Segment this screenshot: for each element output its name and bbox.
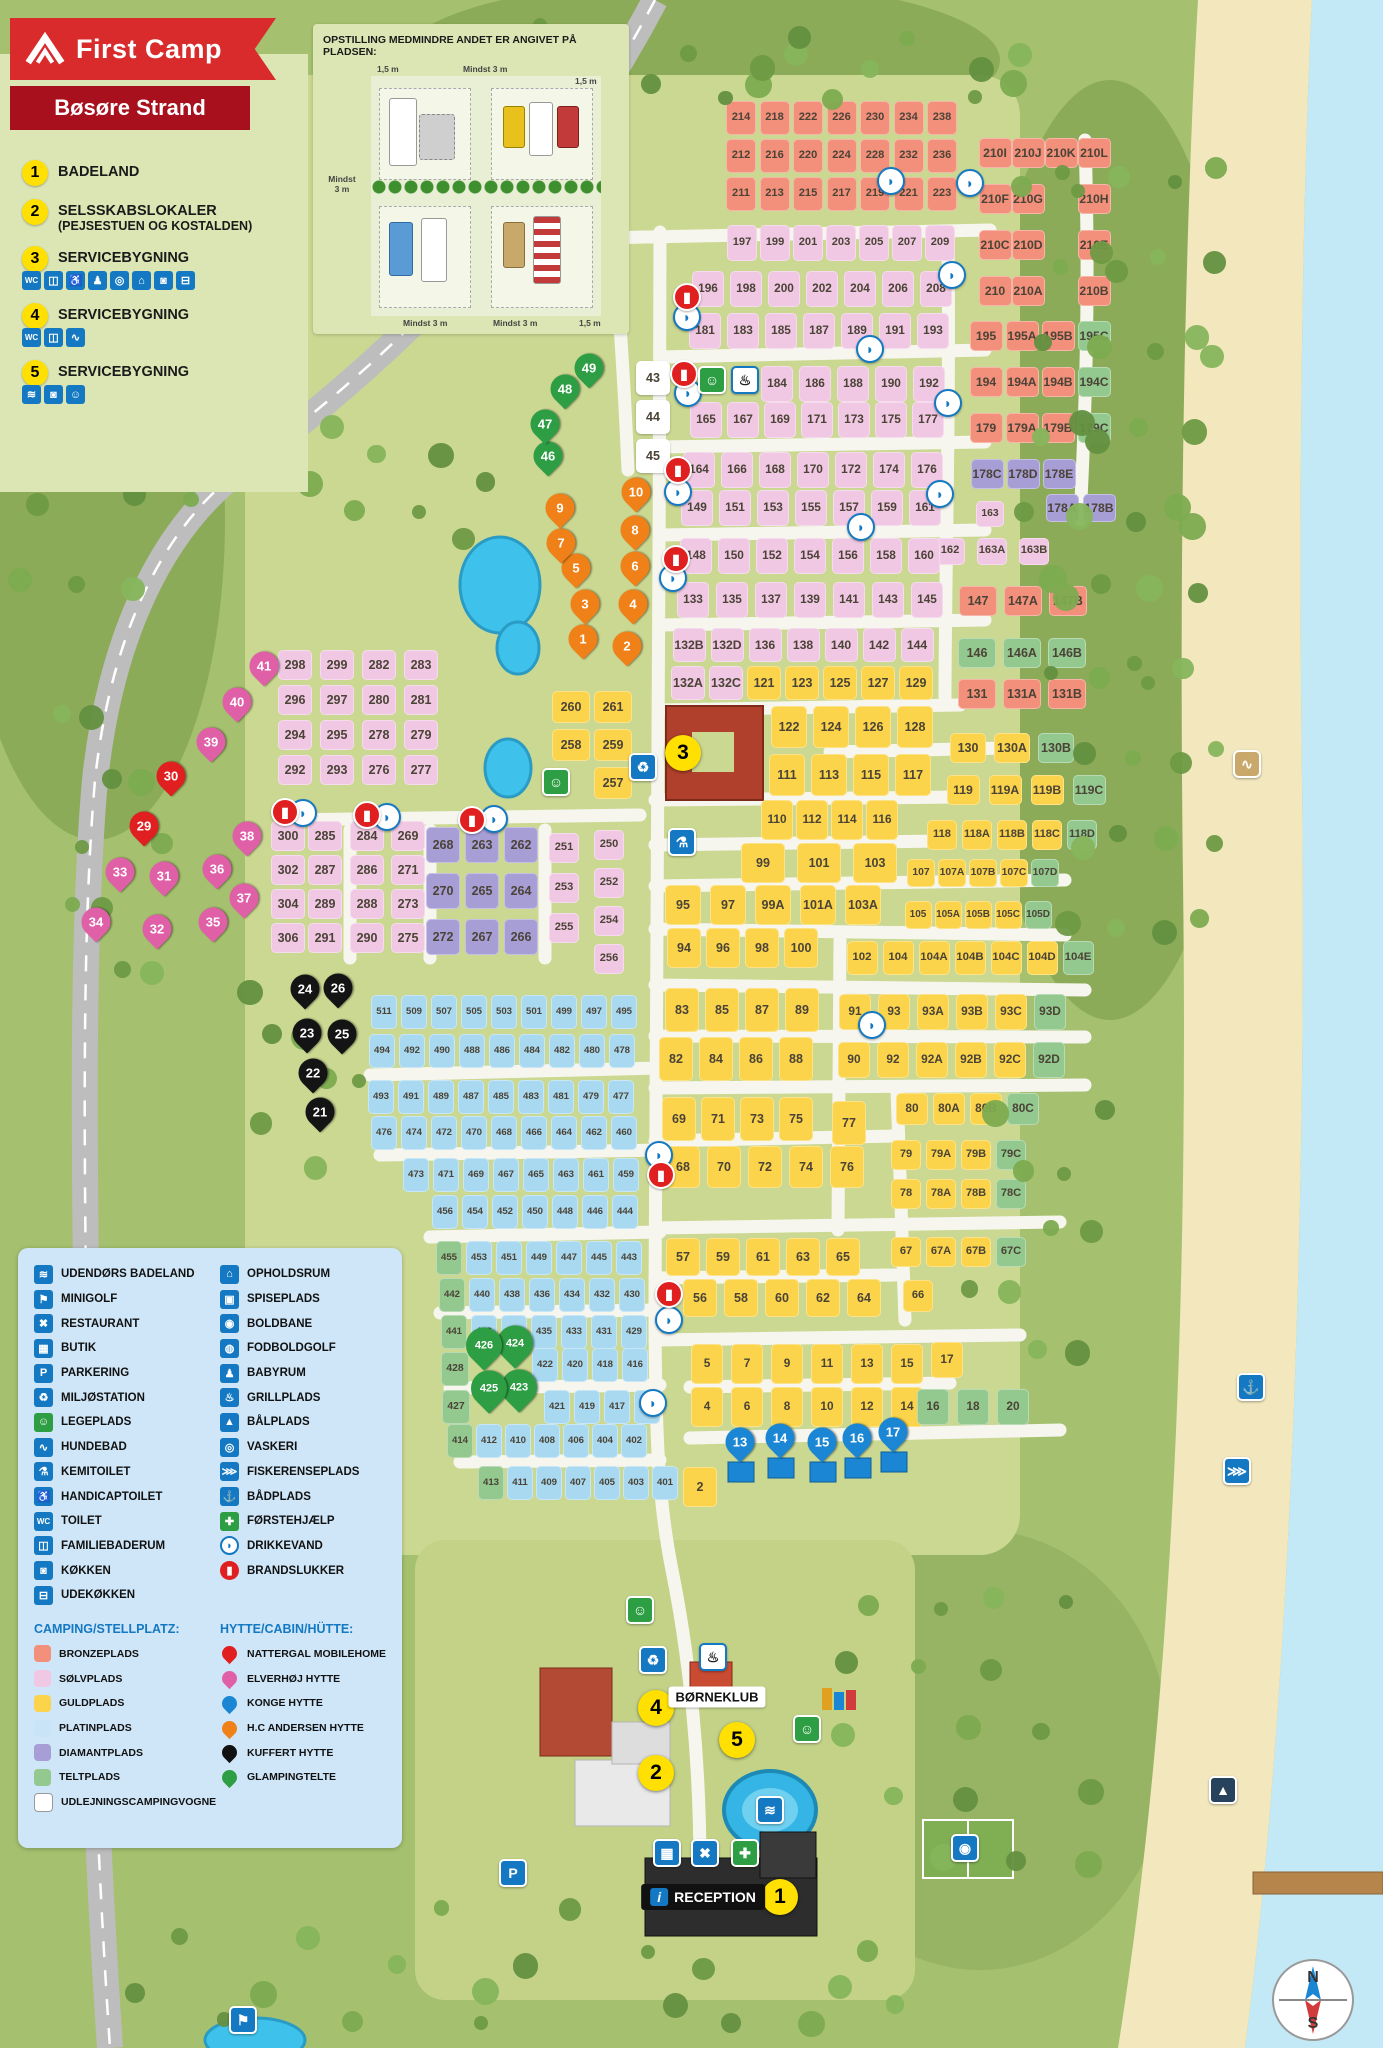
building-subtitle: (PEJSESTUEN OG KOSTALDEN)	[58, 219, 252, 233]
plot-405: 405	[594, 1466, 620, 1500]
plot-174: 174	[873, 452, 905, 488]
plot-105A: 105A	[935, 901, 962, 929]
cabin-type-item: KONGE HYTTE	[220, 1691, 400, 1716]
plot-15: 15	[891, 1344, 923, 1384]
plot-421: 421	[544, 1390, 570, 1424]
plot-168: 168	[759, 452, 791, 488]
elverhoj-hytte-pin-35: 35	[192, 901, 233, 942]
cabin-type-label: ELVERHØJ HYTTE	[247, 1673, 340, 1685]
plot-170: 170	[797, 452, 829, 488]
konge-hytte-pin-16: 16	[836, 1417, 877, 1458]
plot-450: 450	[522, 1195, 548, 1229]
plot-184: 184	[761, 366, 793, 402]
plot-64: 64	[847, 1279, 881, 1317]
tree-icon	[1080, 1220, 1103, 1243]
plot-212: 212	[726, 139, 756, 173]
plot-404: 404	[592, 1424, 618, 1458]
hytte-legend-title: HYTTE/CABIN/HÜTTE:	[220, 1622, 400, 1636]
camping-legend-title: CAMPING/STELLPLATZ:	[34, 1622, 214, 1636]
plot-449: 449	[526, 1241, 552, 1275]
fodboldgolf-icon: ◍	[220, 1339, 239, 1358]
tree-icon	[1125, 750, 1141, 766]
udekokken-icon: ⊟	[176, 271, 195, 290]
plot-132B: 132B	[673, 628, 706, 662]
plot-460: 460	[611, 1116, 637, 1150]
plot-78A: 78A	[926, 1179, 956, 1209]
facility-legend-item: ⚑MINIGOLF	[34, 1287, 214, 1312]
babyrum-icon: ♟	[88, 271, 107, 290]
building-titles: BADELAND	[58, 160, 139, 180]
tree-icon	[1136, 575, 1163, 602]
elverhoj-hytte-pin-32: 32	[136, 908, 177, 949]
plot-88: 88	[779, 1037, 813, 1081]
plot-411: 411	[507, 1466, 533, 1500]
fiskerenseplads-icon: ⋙	[1223, 1457, 1251, 1485]
tree-icon	[1089, 667, 1110, 688]
site-name: Bøsøre Strand	[54, 95, 206, 121]
facility-label: BUTIK	[61, 1342, 96, 1354]
plot-65: 65	[826, 1238, 860, 1276]
tree-icon	[641, 74, 661, 94]
plot-188: 188	[837, 366, 869, 402]
tree-icon	[75, 840, 89, 854]
plot-100: 100	[784, 928, 818, 968]
restaurant-icon: ✖	[34, 1314, 53, 1333]
building-title: SERVICEBYGNING	[58, 360, 189, 380]
info-icon: i	[650, 1888, 668, 1906]
plot-92D: 92D	[1033, 1042, 1065, 1078]
plot-69: 69	[662, 1097, 696, 1141]
plot-74: 74	[789, 1146, 823, 1188]
plot-204: 204	[844, 271, 876, 307]
handicaptoilet-icon: ♿	[66, 271, 85, 290]
plot-144: 144	[901, 628, 934, 662]
tree-icon	[983, 1587, 1005, 1609]
plot-195: 195	[970, 321, 1003, 351]
plot-467: 467	[493, 1158, 519, 1192]
plot-185: 185	[765, 313, 797, 349]
plot-282: 282	[362, 650, 396, 680]
parking-diagram	[371, 76, 601, 316]
tree-icon	[237, 980, 262, 1005]
butik-icon: ▦	[34, 1339, 53, 1358]
plot-183: 183	[727, 313, 759, 349]
tree-icon	[250, 1981, 277, 2008]
minigolf-icon: ⚑	[229, 2006, 257, 2034]
drikkevand-icon: ◗	[938, 261, 966, 289]
plot-210I: 210I	[979, 138, 1012, 168]
plot-119B: 119B	[1031, 775, 1064, 805]
building-marker-2: 2	[638, 1755, 674, 1791]
konge-hytte-pin-15: 15	[801, 1421, 842, 1462]
plot-444: 444	[612, 1195, 638, 1229]
restaurant-icon: ✖	[691, 1839, 719, 1867]
legend-building-item: 1BADELAND	[22, 160, 302, 186]
plot-255: 255	[549, 913, 579, 943]
tree-icon	[1129, 418, 1148, 437]
tree-icon	[1107, 919, 1125, 937]
plot-445: 445	[586, 1241, 612, 1275]
tree-icon	[1055, 911, 1081, 937]
brandslukker-icon: ▮	[664, 456, 692, 484]
plot-190: 190	[875, 366, 907, 402]
plot-454: 454	[462, 1195, 488, 1229]
plot-97: 97	[710, 885, 746, 925]
plot-465: 465	[523, 1158, 549, 1192]
parkering-icon: P	[34, 1364, 53, 1383]
tree-icon	[1032, 1723, 1049, 1740]
plot-153: 153	[757, 490, 789, 526]
plot-67A: 67A	[926, 1237, 956, 1267]
plot-2: 2	[683, 1467, 717, 1507]
plot-466: 466	[521, 1116, 547, 1150]
plot-431: 431	[591, 1315, 617, 1349]
cabin-type-label: KONGE HYTTE	[247, 1697, 323, 1709]
hc-andersen-hytte-pin-9: 9	[539, 487, 580, 528]
tree-icon	[344, 500, 365, 521]
plot-193: 193	[917, 313, 949, 349]
plot-433: 433	[561, 1315, 587, 1349]
facility-legend-item: ≋UDENDØRS BADELAND	[34, 1262, 214, 1287]
konge-hytte-pin-17: 17	[872, 1411, 913, 1452]
brand-name: First Camp	[76, 34, 222, 65]
plot-166: 166	[721, 452, 753, 488]
plot-304: 304	[271, 889, 305, 919]
tree-icon	[513, 1953, 538, 1978]
legeplads-icon: ☺	[542, 768, 570, 796]
building-marker-5: 5	[719, 1722, 755, 1758]
hytte-legend-items: NATTERGAL MOBILEHOMEELVERHØJ HYTTEKONGE …	[220, 1642, 400, 1790]
plot-101A: 101A	[800, 885, 836, 925]
facility-label: BABYRUM	[247, 1367, 306, 1379]
tree-icon	[956, 1715, 980, 1739]
plot-78: 78	[891, 1179, 921, 1209]
tree-icon	[367, 445, 385, 463]
plot-114: 114	[831, 800, 863, 840]
facility-label: BOLDBANE	[247, 1318, 312, 1330]
hundebad-icon: ∿	[34, 1438, 53, 1457]
tree-icon	[428, 443, 453, 468]
plot-459: 459	[613, 1158, 639, 1192]
brandslukker-icon: ▮	[673, 283, 701, 311]
plot-480: 480	[579, 1034, 605, 1068]
plot-494: 494	[369, 1034, 395, 1068]
facility-legend-item: ▣SPISEPLADS	[220, 1287, 400, 1312]
drikkevand-icon: ◗	[877, 167, 905, 195]
facility-label: FISKERENSEPLADS	[247, 1466, 359, 1478]
facility-legend-item: ♿HANDICAPTOILET	[34, 1484, 214, 1509]
kokken-icon: ◙	[44, 385, 63, 404]
cabin-type-item: KUFFERT HYTTE	[220, 1740, 400, 1765]
grillplads-icon: ♨	[220, 1388, 239, 1407]
plot-501: 501	[521, 995, 547, 1029]
tree-icon	[1014, 502, 1034, 522]
plot-8: 8	[771, 1387, 803, 1427]
plot-270: 270	[426, 873, 460, 909]
tree-icon	[1028, 1340, 1046, 1358]
plot-275: 275	[391, 923, 425, 953]
plot-129: 129	[899, 666, 933, 700]
plot-102: 102	[847, 941, 878, 975]
camping-type-label: TELTPLADS	[59, 1771, 120, 1783]
plot-98: 98	[745, 928, 779, 968]
kuffert-hytte-pin-26: 26	[317, 967, 358, 1008]
plot-210L: 210L	[1078, 138, 1111, 168]
plot-79A: 79A	[926, 1140, 956, 1170]
elverhoj-hytte-pin-31: 31	[143, 855, 184, 896]
plot-428: 428	[441, 1352, 469, 1386]
tree-icon	[998, 1280, 1022, 1304]
plot-201: 201	[793, 225, 823, 261]
tree-icon	[969, 57, 994, 82]
plot-110: 110	[761, 800, 793, 840]
facility-legend-item: PPARKERING	[34, 1361, 214, 1386]
plot-104E: 104E	[1063, 941, 1094, 975]
plot-66: 66	[903, 1280, 933, 1312]
kokken-icon: ◙	[34, 1561, 53, 1580]
camping-type-item: DIAMANTPLADS	[34, 1740, 214, 1765]
tree-icon	[798, 2011, 825, 2038]
plot-461: 461	[583, 1158, 609, 1192]
plot-4: 4	[691, 1387, 723, 1427]
building-title: SERVICEBYGNING	[58, 246, 195, 266]
plot-18: 18	[957, 1389, 989, 1425]
plot-95: 95	[665, 885, 701, 925]
toilet-icon: WC	[34, 1512, 53, 1531]
hedge-row	[371, 180, 601, 194]
plot-93C: 93C	[995, 994, 1027, 1030]
plot-507: 507	[431, 995, 457, 1029]
plot-99: 99	[741, 843, 785, 883]
plot-205: 205	[859, 225, 889, 261]
drikkevand-icon: ◗	[847, 513, 875, 541]
plot-403: 403	[623, 1466, 649, 1500]
plot-71: 71	[701, 1097, 735, 1141]
plot-505: 505	[461, 995, 487, 1029]
plot-103: 103	[853, 843, 897, 883]
familiebaderum-icon: ◫	[44, 328, 63, 347]
tree-icon	[1013, 1160, 1034, 1181]
tree-icon	[1055, 165, 1070, 180]
plot-78B: 78B	[961, 1179, 991, 1209]
udekokken-icon: ⊟	[34, 1586, 53, 1605]
firstcamp-tent-logo-icon	[24, 32, 66, 66]
plot-478: 478	[609, 1034, 635, 1068]
tree-icon	[1190, 909, 1209, 928]
forstehjalp-icon: ✚	[220, 1512, 239, 1531]
plot-436: 436	[529, 1278, 555, 1312]
plot-483: 483	[518, 1080, 544, 1114]
plot-194B: 194B	[1042, 367, 1075, 397]
tree-icon	[721, 2013, 741, 2033]
plot-272: 272	[426, 919, 460, 955]
kuffert-hytte-pin-22: 22	[292, 1052, 333, 1093]
plot-104D: 104D	[1027, 941, 1058, 975]
plot-218: 218	[760, 101, 790, 135]
plot-264: 264	[504, 873, 538, 909]
tree-icon	[1154, 826, 1178, 850]
plot-499: 499	[551, 995, 577, 1029]
tree-icon	[1108, 166, 1130, 188]
plot-200: 200	[768, 271, 800, 307]
glamping-pin-425: 425	[464, 1363, 515, 1414]
facility-label: MILJØSTATION	[61, 1392, 145, 1404]
elverhoj-hytte-pin-34: 34	[75, 901, 116, 942]
tree-icon	[412, 505, 426, 519]
tree-icon	[828, 1975, 852, 1999]
plot-169: 169	[764, 402, 796, 438]
facility-label: TOILET	[61, 1515, 102, 1527]
facility-legend-col1: ≋UDENDØRS BADELAND⚑MINIGOLF✖RESTAURANT▦B…	[34, 1262, 214, 1608]
plot-130: 130	[950, 733, 986, 763]
facility-legend-item: ◫FAMILIEBADERUM	[34, 1534, 214, 1559]
cabin-pin-swatch	[219, 1643, 240, 1664]
plot-76: 76	[830, 1146, 864, 1188]
plot-432: 432	[589, 1278, 615, 1312]
balplads-icon: ▲	[220, 1413, 239, 1432]
plot-119: 119	[947, 775, 980, 805]
camping-type-label: GULDPLADS	[59, 1697, 124, 1709]
facility-label: UDEKØKKEN	[61, 1589, 135, 1601]
cabin-pin-swatch	[219, 1717, 240, 1738]
plot-479: 479	[578, 1080, 604, 1114]
hundebad-icon: ∿	[1233, 750, 1261, 778]
plot-77: 77	[832, 1101, 866, 1145]
plot-207: 207	[892, 225, 922, 261]
plot-103A: 103A	[845, 885, 881, 925]
facility-legend-item: ▮BRANDSLUKKER	[220, 1558, 400, 1583]
tree-icon	[53, 705, 71, 723]
plot-104B: 104B	[955, 941, 986, 975]
kemitoilet-icon: ⚗	[34, 1462, 53, 1481]
plot-298: 298	[278, 650, 312, 680]
plot-152: 152	[756, 538, 788, 574]
cabin-pin-swatch	[219, 1693, 240, 1714]
facility-label: OPHOLDSRUM	[247, 1268, 330, 1280]
vaskeri-icon: ◎	[220, 1438, 239, 1457]
tree-icon	[1109, 825, 1126, 842]
tree-icon	[899, 31, 915, 47]
hc-andersen-hytte-pin-3: 3	[564, 583, 605, 624]
plot-234: 234	[894, 101, 924, 135]
plot-107D: 107D	[1031, 859, 1059, 887]
plot-20: 20	[997, 1389, 1029, 1425]
plot-171: 171	[801, 402, 833, 438]
plot-236: 236	[927, 139, 957, 173]
plot-492: 492	[399, 1034, 425, 1068]
tree-icon	[861, 60, 879, 78]
plot-17: 17	[931, 1342, 963, 1378]
camping-type-item: TELTPLADS	[34, 1765, 214, 1790]
vaskeri-icon: ◎	[110, 271, 129, 290]
plot-210D: 210D	[1012, 230, 1045, 260]
tree-icon	[980, 1659, 1003, 1682]
legeplads-icon: ☺	[66, 385, 85, 404]
plot-491: 491	[398, 1080, 424, 1114]
brandslukker-icon: ▮	[647, 1161, 675, 1189]
building-titles: SERVICEBYGNINGWC◫♿♟◎⌂◙⊟	[58, 246, 195, 290]
plot-442: 442	[439, 1278, 465, 1312]
plot-105B: 105B	[965, 901, 992, 929]
tree-icon	[886, 1995, 904, 2013]
tree-icon	[1200, 345, 1224, 369]
plot-73: 73	[740, 1097, 774, 1141]
tree-icon	[1006, 1851, 1026, 1871]
plot-color-swatch	[34, 1793, 53, 1812]
plot-color-swatch	[34, 1744, 51, 1761]
parking-dimension-label: Mindst 3 m	[403, 318, 447, 328]
plot-488: 488	[459, 1034, 485, 1068]
kemitoilet-icon: ⚗	[668, 828, 696, 856]
plot-104: 104	[883, 941, 914, 975]
tree-icon	[1032, 428, 1050, 446]
facility-label: HUNDEBAD	[61, 1441, 127, 1453]
plot-210A: 210A	[1012, 276, 1045, 306]
plot-130B: 130B	[1038, 733, 1074, 763]
tree-icon	[559, 1898, 582, 1921]
plot-452: 452	[492, 1195, 518, 1229]
facility-legend-item: ♟BABYRUM	[220, 1361, 400, 1386]
plot-118A: 118A	[962, 820, 992, 850]
tree-icon	[961, 1280, 978, 1297]
tree-icon	[911, 1659, 927, 1675]
plot-401: 401	[652, 1466, 678, 1500]
legend-building-item: 3SERVICEBYGNINGWC◫♿♟◎⌂◙⊟	[22, 246, 302, 290]
plot-118C: 118C	[1032, 820, 1062, 850]
building-icon-row: WC◫∿	[22, 328, 189, 347]
plot-159: 159	[871, 490, 903, 526]
plot-112: 112	[796, 800, 828, 840]
plot-107B: 107B	[969, 859, 997, 887]
facility-legend-item: ⌂OPHOLDSRUM	[220, 1262, 400, 1287]
plot-290: 290	[350, 923, 384, 953]
building-titles: SELSSKABSLOKALER(PEJSESTUEN OG KOSTALDEN…	[58, 199, 252, 233]
drikkevand-icon: ◗	[655, 1306, 683, 1334]
campground-map: First Camp Bøsøre Strand 1BADELAND2SELSS…	[0, 0, 1383, 2048]
plot-72: 72	[748, 1146, 782, 1188]
tree-icon	[831, 1723, 855, 1747]
tree-icon	[982, 1100, 1009, 1127]
plot-220: 220	[793, 139, 823, 173]
cabin-type-item: H.C ANDERSEN HYTTE	[220, 1716, 400, 1741]
plot-420: 420	[562, 1348, 588, 1382]
boldbane-icon: ◉	[951, 1834, 979, 1862]
parking-dimension-label: Mindst 3 m	[327, 174, 357, 194]
plot-43: 43	[636, 361, 670, 395]
plot-253: 253	[549, 873, 579, 903]
tree-icon	[750, 55, 776, 81]
plot-266: 266	[504, 919, 538, 955]
plot-59: 59	[706, 1238, 740, 1276]
facility-legend-item: ◎VASKERI	[220, 1435, 400, 1460]
plot-198: 198	[730, 271, 762, 307]
plot-131B: 131B	[1048, 679, 1086, 709]
plot-93A: 93A	[917, 994, 949, 1030]
opholdsrum-icon: ⌂	[132, 271, 151, 290]
plot-258: 258	[552, 729, 590, 761]
plot-434: 434	[559, 1278, 585, 1312]
nattergal-mobilehome-pin-30: 30	[150, 755, 191, 796]
hc-andersen-hytte-pin-1: 1	[562, 618, 603, 659]
plot-142: 142	[863, 628, 896, 662]
tree-icon	[1059, 1595, 1073, 1609]
plot-470: 470	[461, 1116, 487, 1150]
legend-building-item: 2SELSSKABSLOKALER(PEJSESTUEN OG KOSTALDE…	[22, 199, 302, 233]
building-marker-3: 3	[665, 735, 701, 771]
tree-icon	[434, 1900, 450, 1916]
tree-icon	[1126, 512, 1146, 532]
plot-44: 44	[636, 400, 670, 434]
